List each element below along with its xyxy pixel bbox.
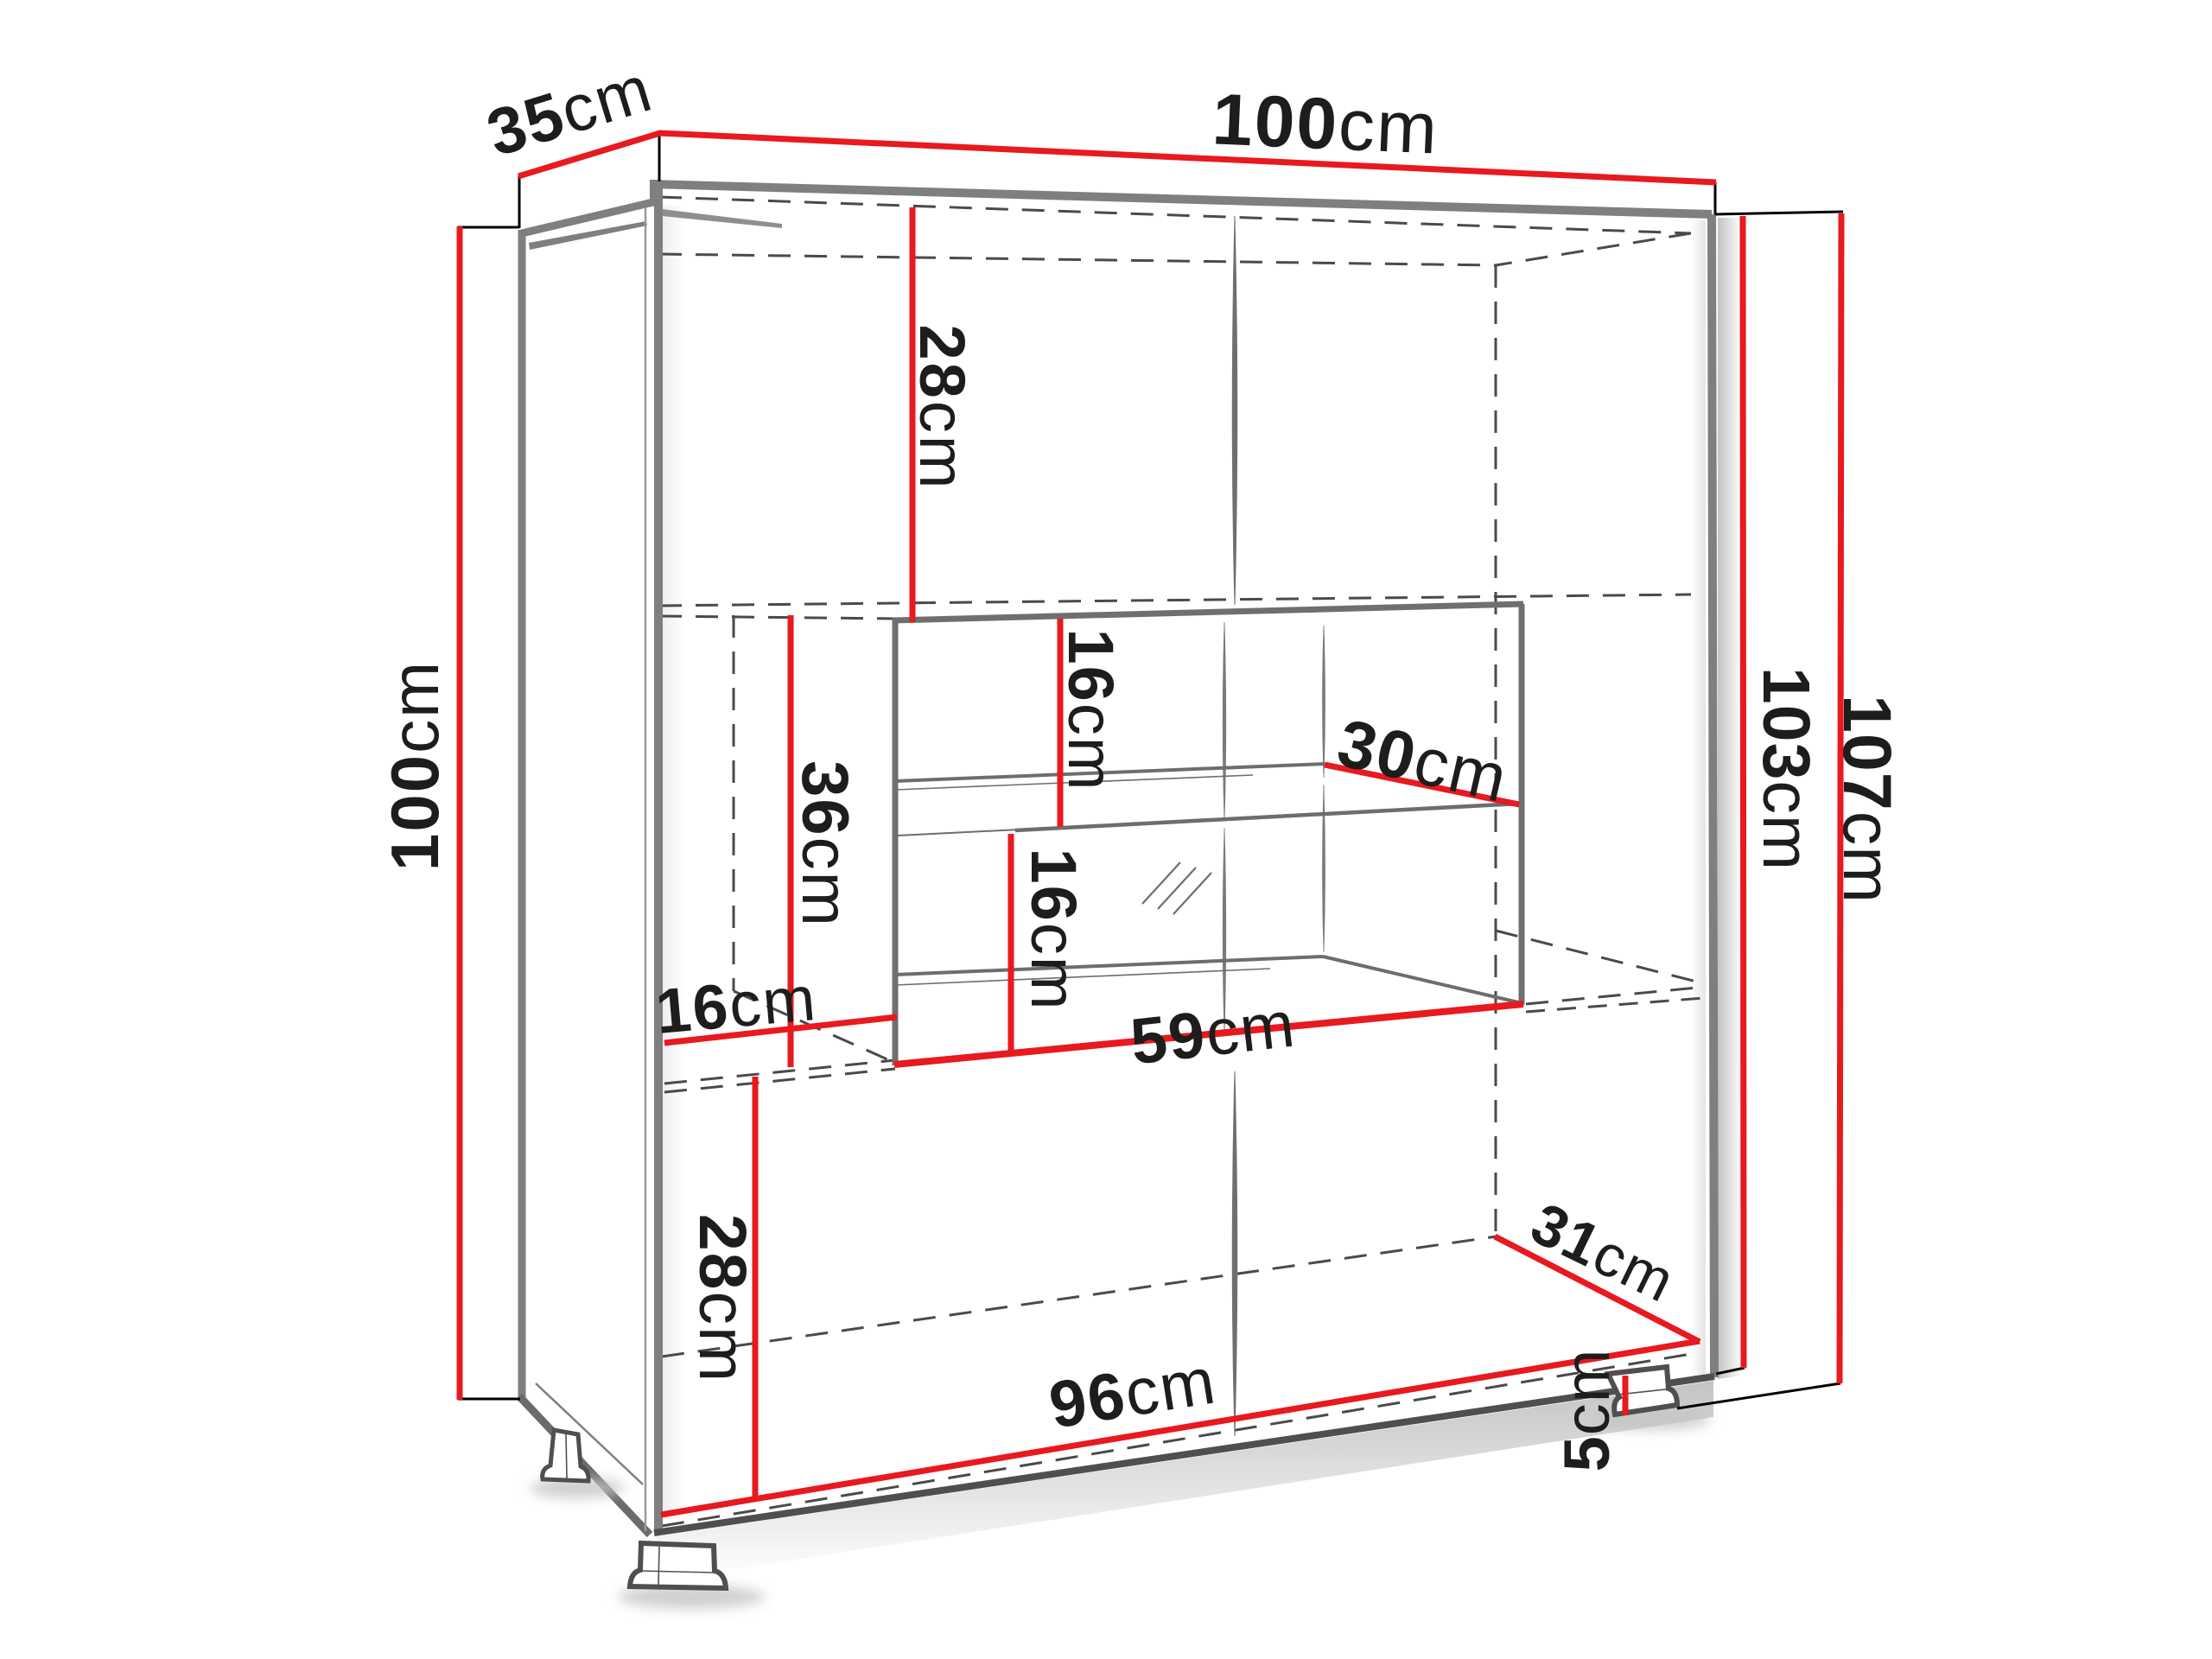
svg-text:107cm: 107cm	[1829, 695, 1906, 904]
svg-text:5cm: 5cm	[1551, 1349, 1623, 1472]
svg-text:16cm: 16cm	[1055, 629, 1127, 792]
svg-text:28cm: 28cm	[906, 325, 978, 492]
svg-text:100cm: 100cm	[1211, 78, 1440, 168]
svg-text:16cm: 16cm	[1018, 849, 1090, 1012]
svg-text:36cm: 36cm	[788, 760, 861, 928]
svg-text:28cm: 28cm	[685, 1214, 760, 1383]
svg-text:100cm: 100cm	[377, 660, 453, 871]
svg-text:16cm: 16cm	[653, 963, 820, 1047]
svg-text:103cm: 103cm	[1749, 667, 1823, 871]
